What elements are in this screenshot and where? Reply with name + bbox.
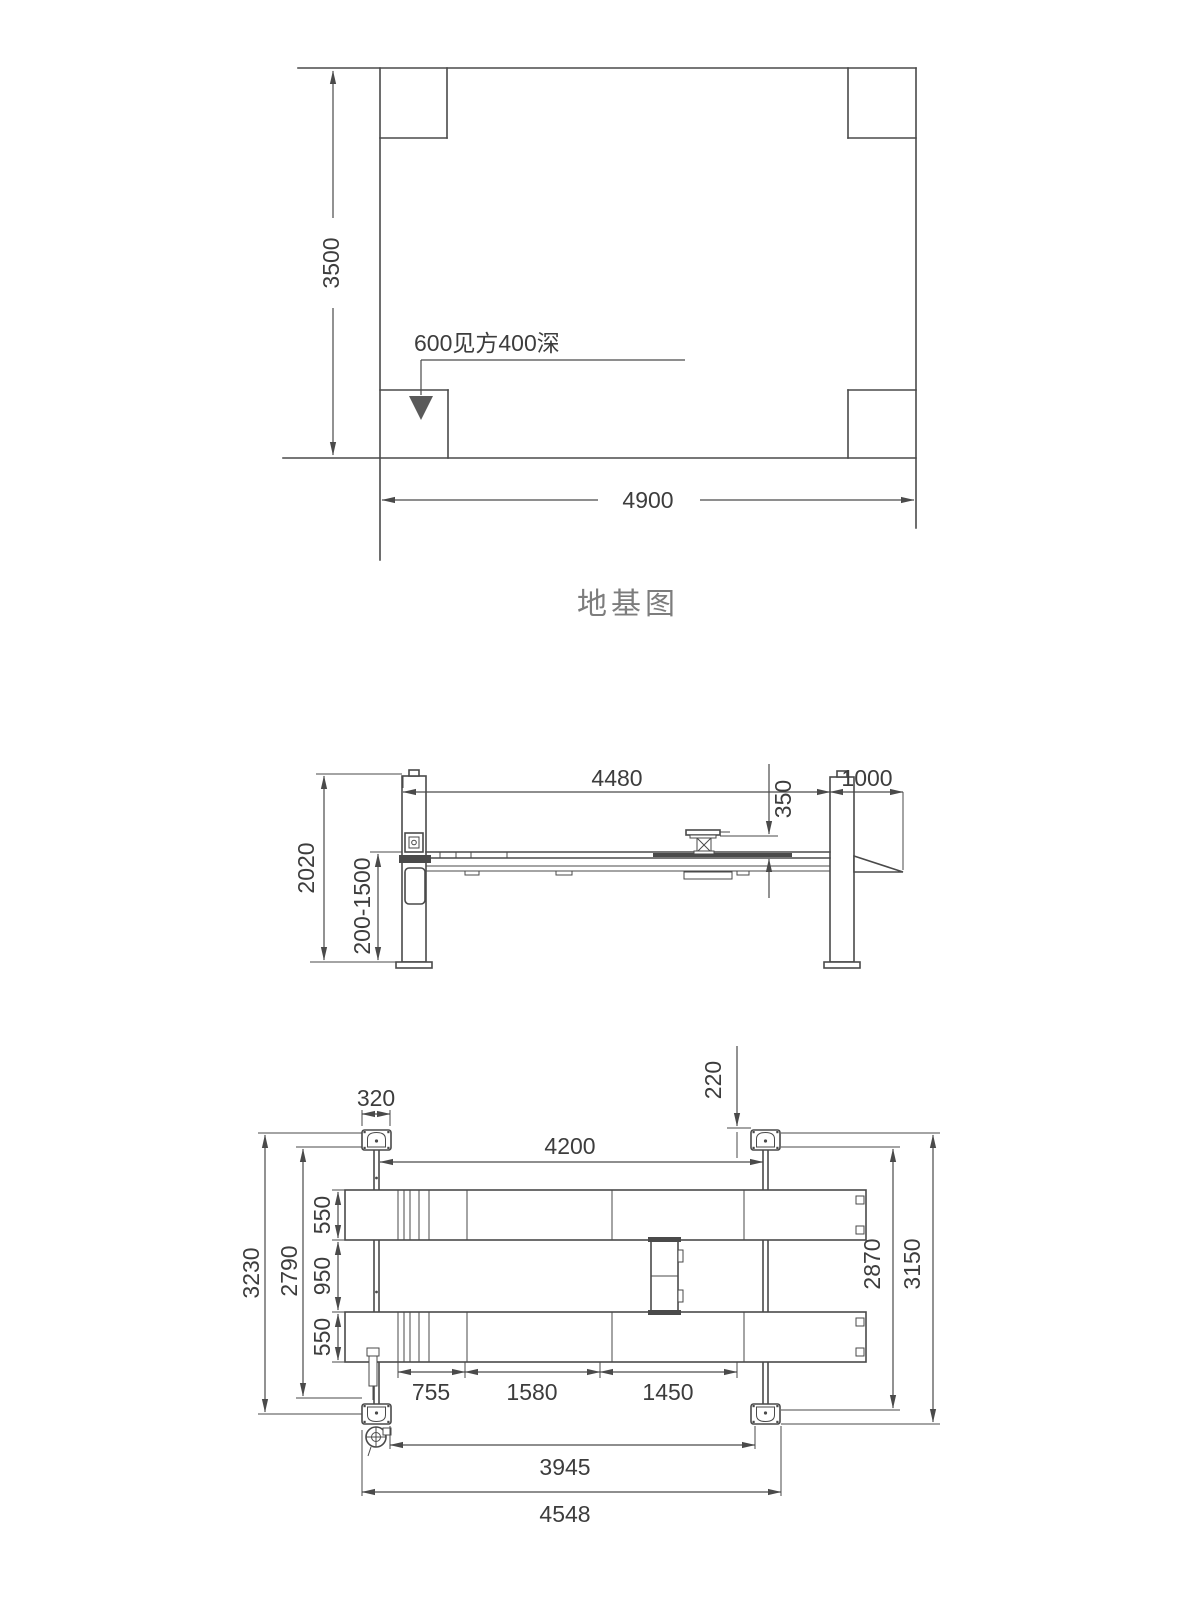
rail-right	[763, 1150, 768, 1403]
dim-bottom-chain: 755 1580 1450	[398, 1362, 737, 1405]
post-plan-top-left	[362, 1130, 391, 1150]
dim-950-label: 950	[309, 1257, 335, 1295]
post-plan-top-right	[751, 1130, 780, 1150]
dim-220-label: 220	[700, 1061, 726, 1099]
dim-1580-label: 1580	[506, 1379, 557, 1405]
dim-2020-label: 2020	[293, 842, 319, 893]
runway-notch	[856, 1318, 864, 1326]
plan-bottom-view: 320 220 4200 3230 2790	[238, 1046, 940, 1527]
foundation-plan-title: 地基图	[577, 588, 679, 621]
post-plan-bottom-right	[751, 1404, 780, 1424]
dim-3945-label: 3945	[539, 1454, 590, 1480]
motor-pump-unit	[366, 1427, 391, 1456]
dim-1450-label: 1450	[642, 1379, 693, 1405]
control-box	[405, 833, 423, 852]
pit-top-right	[848, 68, 916, 138]
leader-arrow-icon	[409, 396, 433, 420]
pit-note-leader: 600见方400深	[409, 330, 685, 420]
dim-200-1500: 200-1500	[349, 852, 402, 960]
dim-3500-label: 3500	[318, 237, 344, 288]
jack-tab	[678, 1250, 683, 1262]
technical-drawing-page: 3500 4900 600见方400深 地基图	[0, 0, 1200, 1610]
dim-1000-label: 1000	[841, 765, 892, 791]
dim-3500: 3500	[318, 71, 344, 455]
pit-note-label: 600见方400深	[414, 330, 560, 356]
dim-200-1500-label: 200-1500	[349, 857, 375, 954]
dim-3945: 3945	[390, 1426, 755, 1480]
dim-4548-label: 4548	[539, 1501, 590, 1527]
dim-4900-label: 4900	[622, 487, 673, 513]
dim-550-bottom-label: 550	[309, 1318, 335, 1356]
dim-3150: 3150	[899, 1135, 933, 1422]
post-plan-bottom-left	[362, 1404, 391, 1424]
left-post-base	[396, 962, 432, 968]
runway-notch	[856, 1348, 864, 1356]
four-post-lift-drawing: 3500 4900 600见方400深 地基图	[0, 0, 1200, 1610]
runway-clamp	[399, 855, 431, 863]
dim-320: 320	[357, 1085, 395, 1126]
dim-3150-label: 3150	[899, 1238, 925, 1289]
pit-bottom-right	[848, 390, 916, 458]
left-post-cap	[409, 770, 419, 776]
dim-2790: 2790	[276, 1149, 303, 1396]
dim-2870-label: 2870	[859, 1238, 885, 1289]
power-unit	[405, 868, 425, 904]
dim-220: 220	[700, 1046, 751, 1158]
dim-4200-label: 4200	[544, 1133, 595, 1159]
dim-320-label: 320	[357, 1085, 395, 1111]
dim-4900: 4900	[382, 487, 914, 513]
dim-2020: 2020	[293, 774, 402, 962]
runway-tab	[465, 871, 479, 875]
drive-on-ramp	[854, 856, 903, 872]
pit-top-left	[380, 68, 447, 138]
dim-2870: 2870	[859, 1149, 893, 1408]
dim-4480-label: 4480	[591, 765, 642, 791]
dim-4200: 4200	[380, 1133, 763, 1162]
rolling-jack-plan	[648, 1237, 683, 1315]
runway-notch	[856, 1226, 864, 1234]
side-elevation-view: 4480 1000 350 2020 200-1500	[293, 764, 903, 968]
jack-bracket	[684, 872, 732, 879]
runway-tab	[556, 871, 572, 875]
dim-755-label: 755	[412, 1379, 450, 1405]
dim-350-label: 350	[770, 780, 796, 818]
rolling-jack-side	[686, 830, 730, 854]
dim-3230-label: 3230	[238, 1247, 264, 1298]
dim-2790-label: 2790	[276, 1245, 302, 1296]
runway-tab	[737, 871, 749, 875]
runway-lower-plan	[345, 1312, 866, 1362]
foundation-plan-view: 3500 4900 600见方400深 地基图	[283, 68, 916, 621]
runway-upper-plan	[345, 1190, 866, 1240]
dim-4480: 4480	[403, 765, 830, 792]
dim-550-950-550: 550 950 550	[309, 1190, 345, 1362]
lock-handle	[367, 1348, 379, 1400]
dim-3230: 3230	[238, 1135, 265, 1412]
dim-550-top-label: 550	[309, 1196, 335, 1234]
right-post-base	[824, 962, 860, 968]
runway-notch	[856, 1196, 864, 1204]
jack-tab	[678, 1290, 683, 1302]
